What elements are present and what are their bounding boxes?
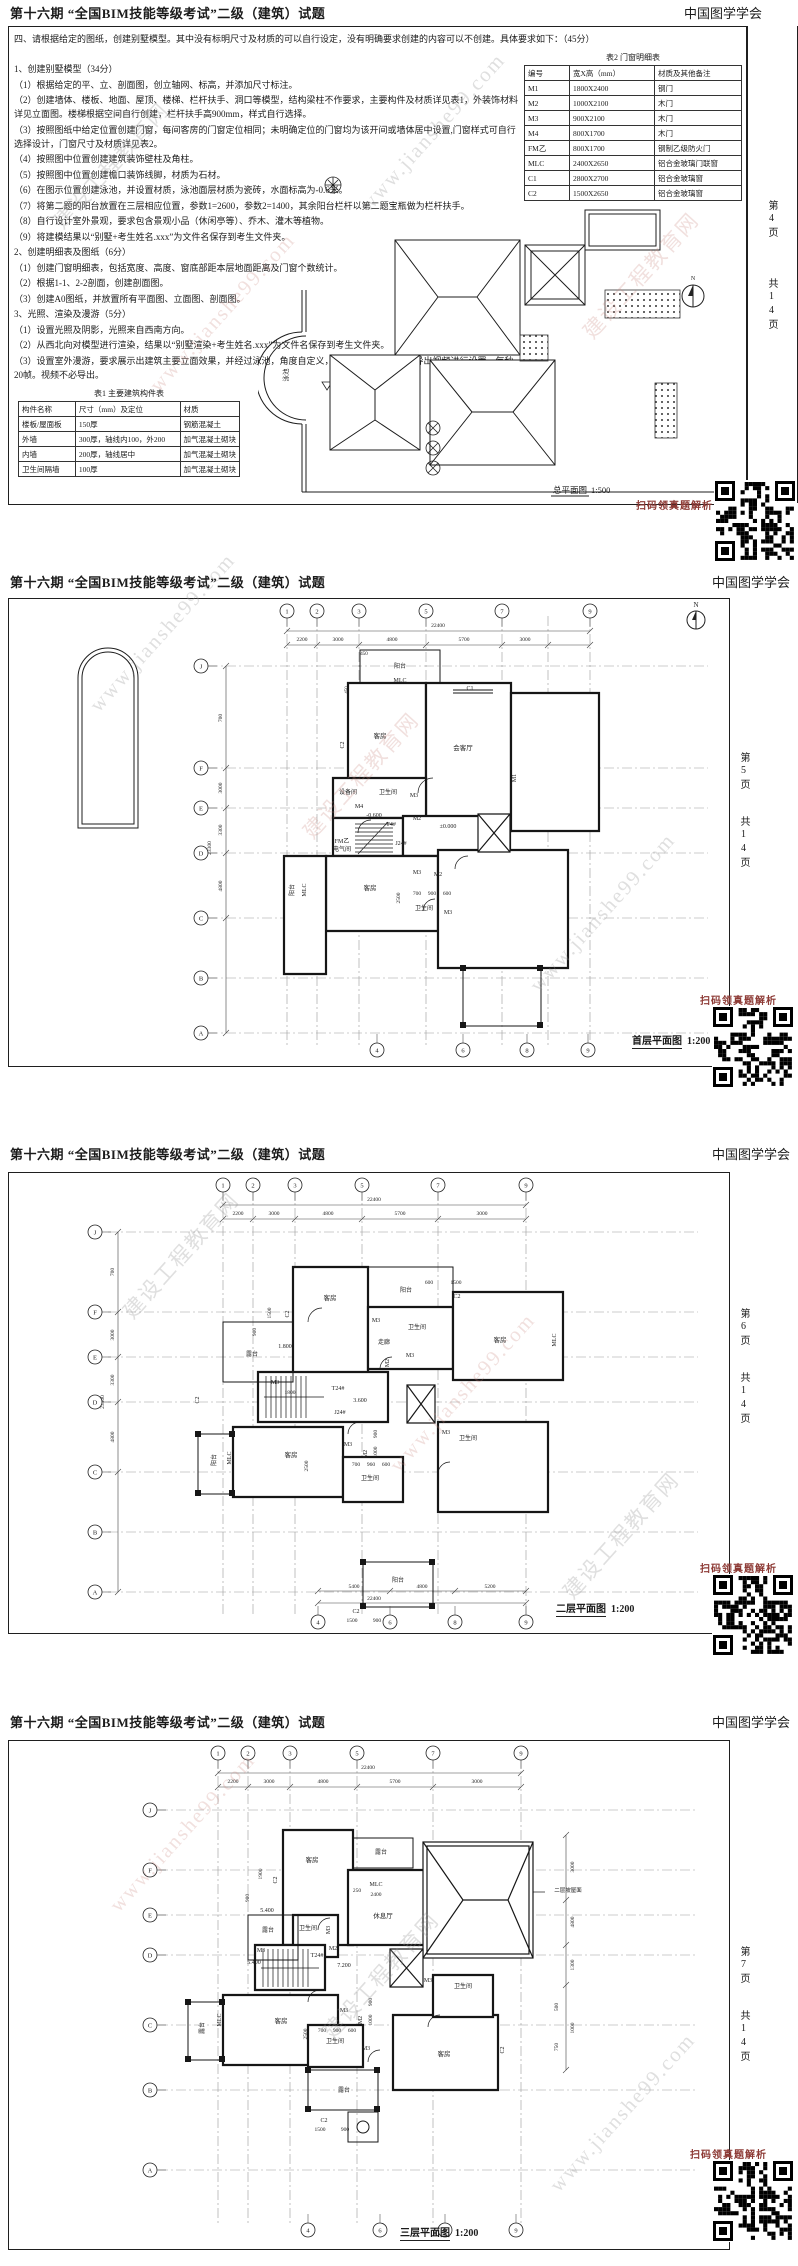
grid-bubble-label: C bbox=[199, 915, 203, 922]
grid-bubble-label: 1 bbox=[285, 608, 288, 615]
grid-bubble-label: C bbox=[148, 2022, 152, 2029]
grid-bubble-label: F bbox=[93, 1309, 97, 1316]
page-title: 第十六期 “全国BIM技能等级考试”二级（建筑）试题 bbox=[10, 3, 325, 22]
table-row: M4800X1700木门 bbox=[525, 126, 742, 141]
plan-label: M3 bbox=[444, 910, 452, 916]
plan-title: 二层平面图1:200 bbox=[556, 1600, 634, 1615]
grid-bubble-label: 9 bbox=[586, 1047, 589, 1054]
third-floor-plan: 2240022003000480057003000300048001300100… bbox=[8, 1740, 728, 2248]
plan-label: 2400 bbox=[371, 1892, 382, 1898]
grid-bubble-label: 9 bbox=[588, 608, 591, 615]
plan-label: 4800 bbox=[417, 1584, 428, 1590]
scanned-exam-document: 建设工程教育网 www.jianshe99.com www.jianshe99.… bbox=[0, 0, 798, 2266]
plan-label: 1000 bbox=[570, 2022, 576, 2033]
plan-label: 600 bbox=[443, 891, 452, 897]
plan-label: 450 bbox=[360, 652, 368, 657]
org-name: 中国图学学会 bbox=[712, 1712, 790, 1731]
plan-label: M3 bbox=[271, 1380, 279, 1386]
plan-label: 电气间 bbox=[333, 845, 351, 853]
plan-label: 3000 bbox=[110, 1329, 116, 1340]
grid-bubble-label: 1 bbox=[216, 1750, 219, 1757]
col-header: 尺寸（mm）及定位 bbox=[75, 402, 180, 417]
plan-label: 900 bbox=[368, 1998, 374, 2007]
plan-label: MLC bbox=[217, 2013, 223, 2026]
plan-label: 600 bbox=[425, 1280, 434, 1286]
plan-label: 卫生间 bbox=[299, 1924, 317, 1932]
plan-label: 750 bbox=[554, 2043, 560, 2052]
page-title: 第十六期 “全国BIM技能等级考试”二级（建筑）试题 bbox=[10, 1144, 325, 1163]
grid-bubble-label: F bbox=[199, 765, 203, 772]
grid-bubble-label: A bbox=[148, 2167, 153, 2174]
grid-bubble-label: F bbox=[148, 1867, 152, 1874]
plan-label: 900 bbox=[428, 891, 437, 897]
table-row: 卫生间隔墙100厚加气混凝土砌块 bbox=[19, 462, 240, 477]
grid-bubble-label: 3 bbox=[288, 1750, 291, 1757]
plan-label: 3000 bbox=[472, 1779, 483, 1785]
plan-label: M2 bbox=[329, 1946, 337, 1952]
plan-label: 5.400 bbox=[260, 1908, 274, 1914]
qr-caption: 扫码领真题解析 bbox=[690, 2146, 767, 2161]
plan-label: FM乙 bbox=[335, 838, 350, 845]
plan-label: 700 bbox=[352, 1462, 361, 1468]
grid-bubble-label: D bbox=[93, 1399, 98, 1406]
grid-bubble-label: 2 bbox=[315, 608, 318, 615]
plan-label: 3000 bbox=[269, 1211, 280, 1217]
plan-label: T24# bbox=[311, 1953, 324, 1959]
grid-bubble-label: D bbox=[148, 1952, 153, 1959]
svg-text:N: N bbox=[691, 276, 696, 282]
plan-label: 4800 bbox=[318, 1779, 329, 1785]
plan-label: 900 bbox=[341, 2127, 350, 2133]
plan-label: 3000 bbox=[264, 1779, 275, 1785]
plan-label: C2 bbox=[320, 2118, 327, 2124]
qr-caption: 扫码领真题解析 bbox=[636, 497, 713, 512]
plan-label: 1900 bbox=[258, 1868, 264, 1879]
plan-label: 1.800 bbox=[278, 1344, 292, 1350]
pool-label: 泳池 bbox=[281, 368, 290, 382]
grid-bubble-label: 1 bbox=[221, 1182, 224, 1189]
plan-label: 2500 bbox=[303, 2028, 309, 2039]
plan-label: 22400 bbox=[431, 623, 445, 629]
plan-label: M2 bbox=[363, 1450, 369, 1458]
plan-label: 二层坡屋面 bbox=[554, 1886, 582, 1894]
page-number: 第5页 bbox=[736, 752, 751, 792]
plan-label: 1500 bbox=[267, 1307, 273, 1318]
plan-label: 露台 bbox=[246, 1350, 258, 1358]
col-header: 编号 bbox=[525, 66, 570, 81]
table-row: 内墙200厚，轴线居中加气混凝土砌块 bbox=[19, 447, 240, 462]
plan-label: 900 bbox=[373, 1430, 379, 1439]
plan-label: 露台 bbox=[338, 2086, 350, 2094]
plan-label: M3 bbox=[424, 1978, 432, 1984]
plan-label: M3 bbox=[362, 2046, 370, 2052]
page1-margin-strip bbox=[746, 26, 798, 503]
plan-label: 露台 bbox=[375, 1848, 387, 1856]
plan-label: 1000 bbox=[373, 1446, 379, 1457]
plan-label: C2 bbox=[273, 1876, 279, 1883]
plan-label: M3 bbox=[442, 1430, 450, 1436]
plan-label: 3300 bbox=[218, 824, 224, 835]
plan-label: 4800 bbox=[218, 880, 224, 891]
plan-label: 3000 bbox=[570, 1861, 576, 1872]
plan-label: 卫生间 bbox=[454, 1982, 472, 1990]
plan-label: 2200 bbox=[228, 1779, 239, 1785]
table-row: M21000X2100木门 bbox=[525, 96, 742, 111]
plan-label: MLC bbox=[227, 1451, 233, 1464]
grid-bubble-label: A bbox=[199, 1030, 204, 1037]
plan-label: 设备间 bbox=[339, 788, 357, 796]
north-arrow-icon: N bbox=[682, 276, 704, 307]
compass-icon bbox=[325, 177, 341, 193]
qr-caption: 扫码领真题解析 bbox=[700, 1560, 777, 1575]
plan-label: 700 bbox=[218, 714, 224, 723]
plan-label: 卫生间 bbox=[415, 904, 433, 912]
plan-label: 3000 bbox=[477, 1211, 488, 1217]
plan-label: M3 bbox=[257, 1948, 265, 1954]
plan-label: 5700 bbox=[390, 1779, 401, 1785]
grid-bubble-label: 9 bbox=[524, 1182, 527, 1189]
grid-bubble-label: E bbox=[93, 1354, 97, 1361]
grid-bubble-label: 2 bbox=[246, 1750, 249, 1757]
plan-label: 客房 bbox=[306, 1855, 319, 1864]
col-header: 构件名称 bbox=[19, 402, 76, 417]
plan-label: 走廊 bbox=[378, 1338, 390, 1346]
plan-label: 7.200 bbox=[337, 1963, 351, 1969]
plan-label: 600 bbox=[348, 2028, 357, 2034]
plan-label: 3300 bbox=[110, 1374, 116, 1385]
page-title: 第十六期 “全国BIM技能等级考试”二级（建筑）试题 bbox=[10, 1712, 325, 1731]
plan-label: 1500 bbox=[451, 1280, 462, 1286]
pages-total: 共14页 bbox=[736, 2010, 751, 2064]
plan-label: 2500 bbox=[396, 892, 402, 903]
grid-bubble-label: 5 bbox=[355, 1750, 358, 1757]
plan-label: 休息厅 bbox=[373, 1911, 393, 1920]
plan-label: C2 bbox=[352, 1609, 359, 1615]
plan-label: 700 bbox=[110, 1268, 116, 1277]
plan-label: 会客厅 bbox=[453, 743, 473, 752]
plan-label: 3000 bbox=[333, 637, 344, 643]
plan-label: -0.600 bbox=[366, 813, 382, 819]
plan-label: 450 bbox=[345, 686, 350, 694]
plan-label: 900 bbox=[252, 1328, 258, 1337]
plan-label: 阳台 bbox=[394, 662, 406, 670]
plan-label: 900 bbox=[373, 1618, 382, 1624]
plan-label: M3 bbox=[406, 1353, 414, 1359]
plan-label: 600 bbox=[382, 1462, 391, 1468]
plan-label: 22400 bbox=[367, 1197, 381, 1203]
qr-caption: 扫码领真题解析 bbox=[700, 992, 777, 1007]
plan-title: 首层平面图1:200 bbox=[632, 1032, 710, 1047]
grid-bubble-label: C bbox=[93, 1469, 97, 1476]
table-caption: 表1 主要建筑构件表 bbox=[18, 388, 240, 399]
spec-item: （1）根据给定的平、立、剖面图，创立轴网、标高，并添加尺寸标注。 bbox=[14, 78, 520, 92]
plan-label: 卫生间 bbox=[361, 1474, 379, 1482]
org-name: 中国图学学会 bbox=[684, 3, 762, 22]
plan-label: 900 bbox=[245, 1894, 251, 1903]
plan-label: M3 bbox=[372, 1318, 380, 1324]
plan-label: 卫生间 bbox=[459, 1434, 477, 1442]
plan-label: 客房 bbox=[364, 883, 377, 892]
plan-label: 5700 bbox=[459, 637, 470, 643]
plan-label: M3 bbox=[344, 1442, 352, 1448]
table-row: M3900X2100木门 bbox=[525, 111, 742, 126]
pages-total: 共14页 bbox=[764, 278, 779, 332]
qr-code bbox=[712, 1006, 794, 1088]
plan-label: N bbox=[693, 601, 698, 609]
plan-label: 露台 bbox=[198, 2022, 206, 2034]
plan-label: T4# bbox=[386, 822, 396, 828]
plan-label: ±0.000 bbox=[440, 824, 457, 830]
exam-intro: 四、请根据给定的图纸，创建别墅模型。其中没有标明尺寸及材质的可以自行设定，没有明… bbox=[14, 32, 738, 46]
plan-label: 900 bbox=[333, 2028, 342, 2034]
table-row: 外墙300厚，轴线内100，外200加气混凝土砌块 bbox=[19, 432, 240, 447]
plan-label: J24# bbox=[395, 841, 406, 847]
table-row: 楼板/屋面板150厚钢筋混凝土 bbox=[19, 417, 240, 432]
plan-label: 4800 bbox=[110, 1431, 116, 1442]
plan-label: C2 bbox=[453, 1294, 460, 1300]
plan-label: 客房 bbox=[438, 2049, 451, 2058]
site-plan-title: 总平面图 bbox=[553, 485, 587, 495]
plan-label: MLC bbox=[369, 1882, 382, 1888]
spec-item: 1、创建别墅模型（34分） bbox=[14, 62, 520, 76]
plan-label: 4800 bbox=[323, 1211, 334, 1217]
page-title: 第十六期 “全国BIM技能等级考试”二级（建筑）试题 bbox=[10, 572, 325, 591]
spec-item: （3）按照图纸中给定位置创建门窗，每间客房的门窗定位相同；未明确定位的门窗均为该… bbox=[14, 123, 520, 151]
plan-label: 22400 bbox=[361, 1765, 375, 1771]
table-row: M11800X2400钢门 bbox=[525, 81, 742, 96]
plan-label: 1500 bbox=[315, 2127, 326, 2133]
plan-label: 700 bbox=[413, 891, 422, 897]
plan-label: 3.600 bbox=[353, 1398, 367, 1404]
plan-label: M4 bbox=[355, 804, 363, 810]
second-floor-plan: 2240022003000480057003000540048005200224… bbox=[8, 1172, 728, 1632]
plan-label: 客房 bbox=[285, 1450, 298, 1459]
plan-label: 阳台 bbox=[210, 1454, 218, 1466]
plan-label: MLC bbox=[393, 678, 406, 684]
plan-label: 阳台 bbox=[400, 1286, 412, 1294]
org-name: 中国图学学会 bbox=[712, 1144, 790, 1163]
plan-label: M1 bbox=[512, 774, 518, 782]
grid-bubble-label: 8 bbox=[453, 1619, 456, 1626]
pages-total: 共14页 bbox=[736, 816, 751, 870]
component-schedule: 表1 主要建筑构件表 构件名称 尺寸（mm）及定位 材质 楼板/屋面板150厚钢… bbox=[18, 388, 240, 477]
plan-label: 5.400 bbox=[247, 1960, 261, 1966]
plan-label: MLC bbox=[302, 883, 308, 896]
plan-label: 卫生间 bbox=[408, 1323, 426, 1331]
plan-label: 2200 bbox=[297, 637, 308, 643]
plan-label: MLC bbox=[552, 1333, 558, 1346]
grid-bubble-label: 9 bbox=[514, 2227, 517, 2234]
plan-label: 3000 bbox=[520, 637, 531, 643]
grid-bubble-label: B bbox=[199, 975, 204, 982]
plan-label: M3 bbox=[410, 793, 418, 799]
ground-floor-plan: 2240022003000480057003000700300033004800… bbox=[8, 598, 728, 1065]
plan-label: 4800 bbox=[570, 1916, 576, 1927]
org-name: 中国图学学会 bbox=[712, 572, 790, 591]
plan-label: 4800 bbox=[387, 637, 398, 643]
qr-code bbox=[712, 1574, 794, 1656]
plan-title: 三层平面图1:200 bbox=[400, 2224, 478, 2239]
plan-label: C2 bbox=[340, 741, 346, 748]
plan-label: 5700 bbox=[395, 1211, 406, 1217]
plan-label: M3 bbox=[340, 2008, 348, 2014]
plan-label: T24# bbox=[332, 1386, 345, 1392]
table-header-row: 构件名称 尺寸（mm）及定位 材质 bbox=[19, 402, 240, 417]
plan-label: 1300 bbox=[570, 1959, 576, 1970]
plan-label: M2 bbox=[413, 816, 421, 822]
plan-label: M3 bbox=[326, 1926, 332, 1934]
grid-bubble-label: A bbox=[93, 1589, 98, 1596]
site-plan-drawing: 泳池 -0.60 bbox=[258, 160, 746, 501]
plan-label: J24# bbox=[334, 1410, 345, 1416]
col-header: 材质及其他备注 bbox=[655, 66, 742, 81]
table-caption: 表2 门窗明细表 bbox=[524, 52, 742, 63]
plan-label: 960 bbox=[367, 1462, 376, 1468]
qr-code bbox=[712, 2160, 794, 2242]
page-number: 第7页 bbox=[736, 1946, 751, 1986]
col-header: 材质 bbox=[180, 402, 240, 417]
grid-bubble-label: 5 bbox=[424, 608, 427, 615]
plan-label: C1 bbox=[466, 686, 473, 692]
grid-bubble-label: 3 bbox=[357, 608, 360, 615]
plan-label: 露台 bbox=[262, 1926, 274, 1934]
plan-label: 250 bbox=[353, 1888, 362, 1894]
site-plan-scale: 1:500 bbox=[591, 485, 610, 495]
plan-label: C2 bbox=[195, 1396, 201, 1403]
page-number: 第6页 bbox=[736, 1308, 751, 1348]
plan-label: 22400 bbox=[367, 1596, 381, 1602]
grid-bubble-label: 2 bbox=[251, 1182, 254, 1189]
plan-label: M3 bbox=[413, 870, 421, 876]
grid-bubble-label: B bbox=[93, 1529, 98, 1536]
grid-bubble-label: 9 bbox=[519, 1750, 522, 1757]
page-number: 第4页 bbox=[764, 200, 779, 240]
north-arrow-icon bbox=[687, 611, 705, 629]
plan-label: 500 bbox=[554, 2003, 560, 2012]
plan-label: 客房 bbox=[324, 1293, 337, 1302]
qr-code bbox=[714, 480, 796, 562]
plan-label: M2 bbox=[434, 872, 442, 878]
plan-label: 卫生间 bbox=[379, 788, 397, 796]
grid-bubble-label: B bbox=[148, 2087, 153, 2094]
table-row: FM乙800X1700钢制乙级防火门 bbox=[525, 141, 742, 156]
plan-label: 客房 bbox=[494, 1335, 507, 1344]
grid-bubble-label: 5 bbox=[360, 1182, 363, 1189]
grid-bubble-label: D bbox=[199, 850, 204, 857]
plan-label: 阳台 bbox=[288, 884, 296, 896]
plan-label: 700 bbox=[318, 2028, 327, 2034]
plan-label: 卫生间 bbox=[326, 2037, 344, 2045]
plan-label: 5200 bbox=[485, 1584, 496, 1590]
plan-label: 3000 bbox=[218, 782, 224, 793]
col-header: 宽X高（mm） bbox=[570, 66, 655, 81]
grid-bubble-label: E bbox=[199, 805, 203, 812]
plan-label: 客房 bbox=[275, 2016, 288, 2025]
plan-label: 5400 bbox=[349, 1584, 360, 1590]
plan-label: 客房 bbox=[374, 731, 387, 740]
grid-bubble-label: 9 bbox=[524, 1619, 527, 1626]
plan-label: 阳台 bbox=[392, 1576, 404, 1584]
plan-label: 1800 bbox=[285, 1390, 296, 1396]
pages-total: 共14页 bbox=[736, 1372, 751, 1426]
table-header-row: 编号 宽X高（mm） 材质及其他备注 bbox=[525, 66, 742, 81]
plan-label: 1000 bbox=[368, 2014, 374, 2025]
plan-label: 1500 bbox=[347, 1618, 358, 1624]
grid-bubble-label: E bbox=[148, 1912, 152, 1919]
plan-label: C2 bbox=[500, 2046, 506, 2053]
plan-label: 2200 bbox=[233, 1211, 244, 1217]
grid-bubble-label: 8 bbox=[525, 1047, 528, 1054]
plan-label: C2 bbox=[285, 1310, 291, 1317]
plan-label: M2 bbox=[358, 2016, 364, 2024]
grid-bubble-label: 3 bbox=[293, 1182, 296, 1189]
spec-item: （2）创建墙体、楼板、地面、屋顶、楼梯、栏杆扶手、洞口等模型，结构梁柱不作要求，… bbox=[14, 93, 520, 121]
plan-label: M2 bbox=[385, 1359, 391, 1367]
plan-label: 2500 bbox=[304, 1460, 310, 1471]
